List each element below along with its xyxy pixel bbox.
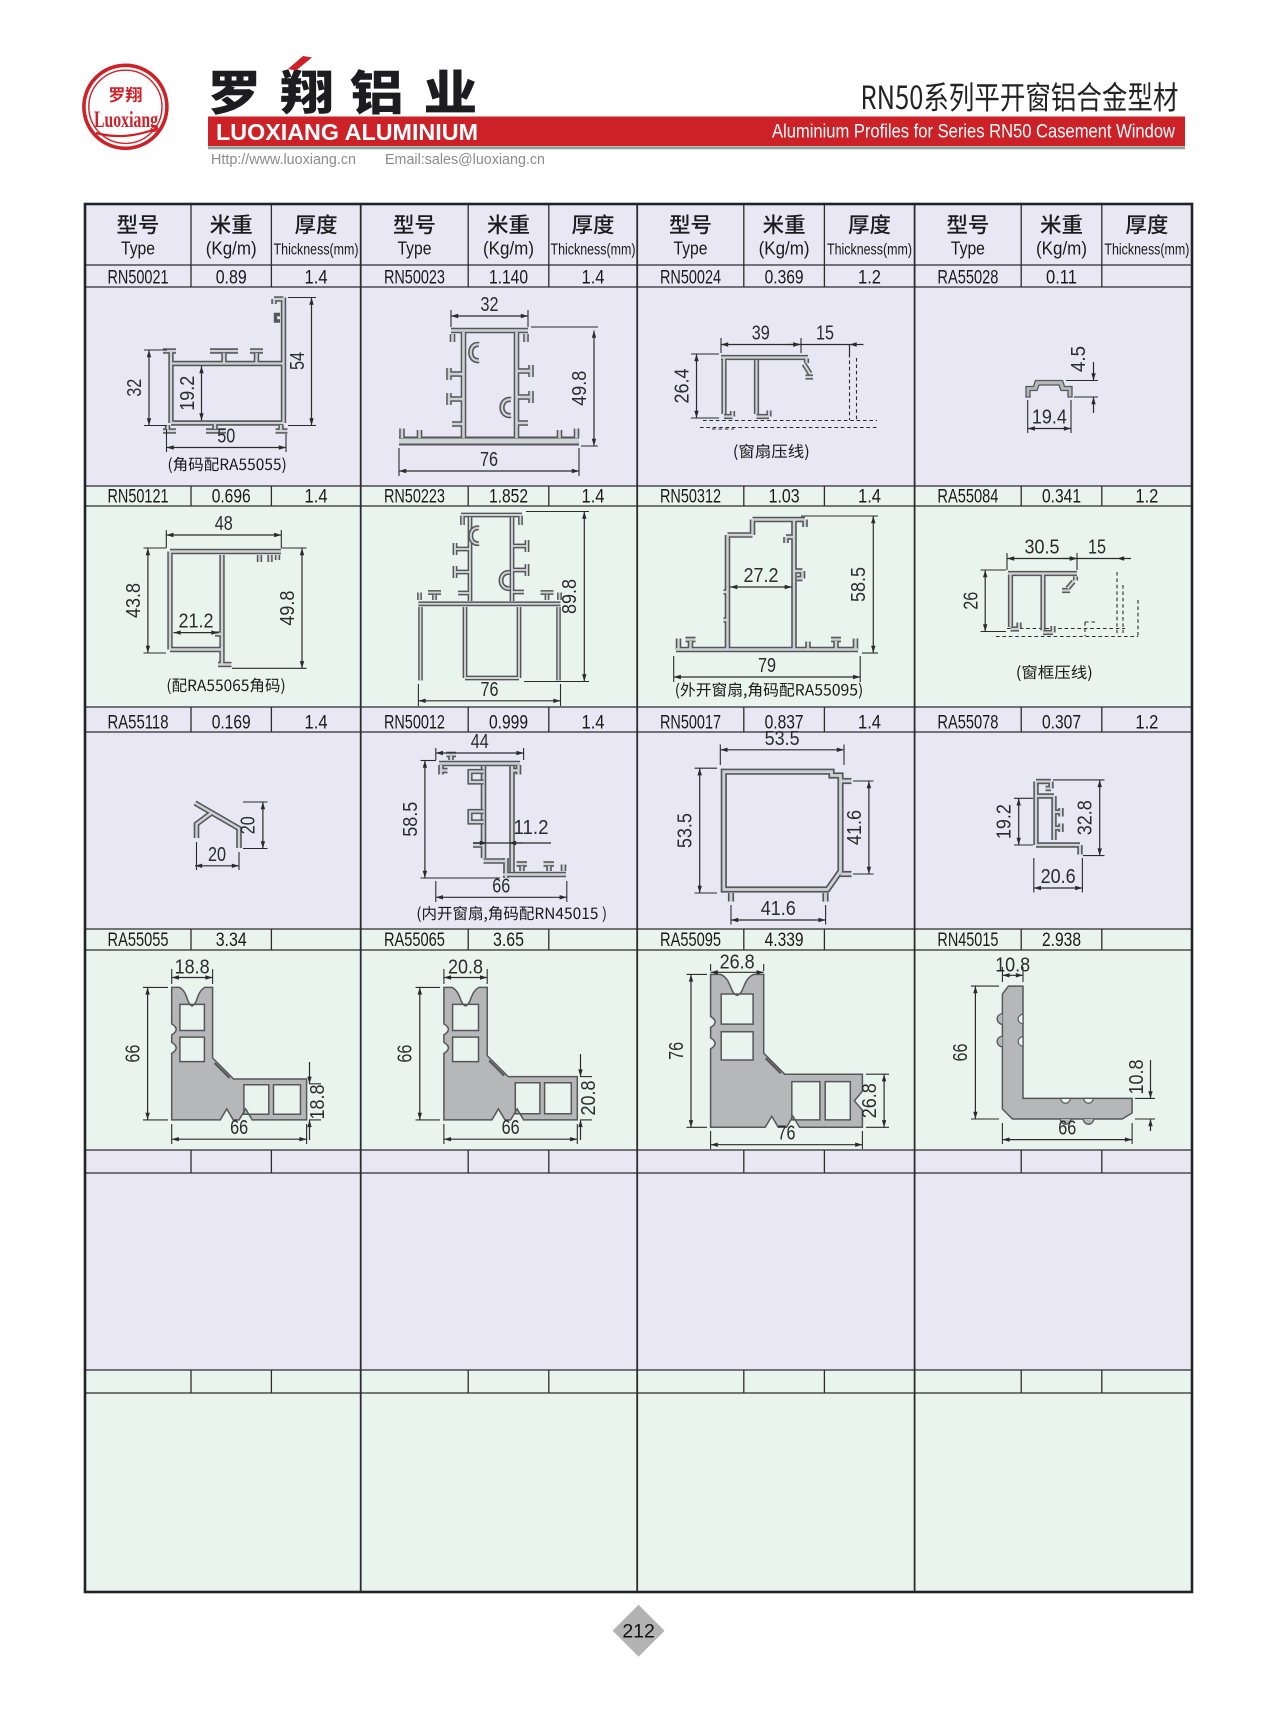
svg-text:66: 66 [395,1045,417,1063]
svg-text:1.4: 1.4 [305,713,328,734]
svg-text:49.8: 49.8 [277,591,299,626]
svg-text:89.8: 89.8 [559,579,581,614]
svg-text:RN50017: RN50017 [660,713,721,734]
svg-text:212: 212 [622,1621,655,1643]
svg-text:58.5: 58.5 [400,802,422,837]
svg-text:30.5: 30.5 [1025,537,1060,559]
svg-text:Luoxiang: Luoxiang [94,107,158,132]
svg-text:1.4: 1.4 [858,487,881,508]
svg-text:1.4: 1.4 [582,268,605,289]
svg-text:RA55118: RA55118 [108,713,169,734]
svg-text:11.2: 11.2 [514,817,549,839]
svg-text:RN50021: RN50021 [108,268,169,289]
svg-text:Type: Type [121,238,155,259]
svg-text:0.89: 0.89 [216,268,247,289]
svg-text:3.65: 3.65 [493,930,524,951]
svg-text:41.6: 41.6 [844,810,866,845]
svg-text:4.339: 4.339 [765,930,804,951]
svg-text:0.696: 0.696 [212,487,251,508]
svg-text:19.4: 19.4 [1032,407,1067,429]
svg-text:76: 76 [666,1042,688,1060]
svg-text:Thickness(mm): Thickness(mm) [274,242,359,259]
svg-text:(Kg/m): (Kg/m) [1036,238,1087,259]
svg-text:1.4: 1.4 [305,487,328,508]
svg-text:RN45015: RN45015 [937,930,998,951]
svg-text:43.8: 43.8 [123,583,145,618]
svg-text:0.999: 0.999 [489,713,528,734]
svg-text:26.8: 26.8 [859,1083,881,1118]
svg-text:Thickness(mm): Thickness(mm) [1104,242,1189,259]
svg-text:10.8: 10.8 [1126,1060,1148,1095]
svg-text:Type: Type [674,238,708,259]
svg-text:(Kg/m): (Kg/m) [759,238,810,259]
svg-text:1.140: 1.140 [489,268,528,289]
svg-text:32.8: 32.8 [1075,800,1097,835]
svg-text:66: 66 [950,1044,972,1062]
svg-text:Email:sales@luoxiang.cn: Email:sales@luoxiang.cn [385,152,545,168]
svg-text:Http://www.luoxiang.cn: Http://www.luoxiang.cn [211,152,356,168]
svg-text:48: 48 [215,513,233,535]
svg-text:58.5: 58.5 [848,567,870,602]
svg-text:1.852: 1.852 [489,487,528,508]
svg-text:10.8: 10.8 [995,954,1030,976]
svg-text:79: 79 [758,655,776,677]
svg-text:18.8: 18.8 [307,1085,329,1120]
svg-text:76: 76 [480,449,498,471]
svg-text:Type: Type [397,238,431,259]
svg-text:66: 66 [1058,1118,1076,1140]
svg-text:15: 15 [816,323,834,345]
svg-text:27.2: 27.2 [744,565,779,587]
svg-text:66: 66 [492,875,510,897]
svg-text:0.341: 0.341 [1042,487,1081,508]
svg-text:21.2: 21.2 [179,611,214,633]
svg-text:RN50223: RN50223 [384,487,445,508]
svg-text:18.8: 18.8 [175,957,210,979]
svg-text:RA55084: RA55084 [937,487,998,508]
svg-text:54: 54 [287,352,309,370]
svg-text:66: 66 [123,1045,145,1063]
svg-text:Aluminium Profiles for Series: Aluminium Profiles for Series RN50 Casem… [772,122,1175,143]
svg-text:26.8: 26.8 [720,952,755,974]
svg-text:RN50312: RN50312 [660,487,721,508]
svg-text:1.2: 1.2 [858,268,881,289]
svg-text:1.4: 1.4 [582,713,605,734]
svg-text:RA55028: RA55028 [937,268,998,289]
svg-text:1.2: 1.2 [1135,487,1158,508]
svg-text:RA55078: RA55078 [937,713,998,734]
svg-text:Thickness(mm): Thickness(mm) [827,242,912,259]
svg-text:RN50024: RN50024 [660,268,721,289]
svg-text:4.5: 4.5 [1068,346,1090,372]
svg-text:26.4: 26.4 [672,369,694,404]
svg-text:26: 26 [961,592,983,610]
svg-text:1.4: 1.4 [582,487,605,508]
svg-text:66: 66 [502,1117,520,1139]
svg-text:20: 20 [238,816,260,834]
svg-text:44: 44 [471,731,489,753]
svg-text:Type: Type [951,238,985,259]
svg-text:32: 32 [124,379,146,397]
svg-text:20.8: 20.8 [448,957,483,979]
svg-text:76: 76 [778,1123,796,1145]
svg-text:0.11: 0.11 [1046,268,1077,289]
svg-text:53.5: 53.5 [765,728,800,750]
svg-text:66: 66 [230,1117,248,1139]
svg-text:39: 39 [752,323,770,345]
svg-text:3.34: 3.34 [216,930,247,951]
svg-text:1.4: 1.4 [858,713,881,734]
svg-text:1.03: 1.03 [769,487,800,508]
svg-text:0.169: 0.169 [212,713,251,734]
svg-text:20: 20 [208,844,226,866]
svg-text:RN50012: RN50012 [384,713,445,734]
svg-text:53.5: 53.5 [675,813,697,848]
svg-text:0.369: 0.369 [765,268,804,289]
svg-text:RA55055: RA55055 [108,930,169,951]
svg-text:0.307: 0.307 [1042,713,1081,734]
svg-text:49.8: 49.8 [569,371,591,406]
svg-text:1.4: 1.4 [305,268,328,289]
svg-text:19.2: 19.2 [994,804,1016,839]
svg-text:19.2: 19.2 [177,376,199,411]
svg-text:50: 50 [217,426,235,448]
svg-text:RA55095: RA55095 [660,930,721,951]
svg-text:15: 15 [1088,537,1106,559]
svg-text:(Kg/m): (Kg/m) [483,238,534,259]
svg-text:RN50023: RN50023 [384,268,445,289]
svg-text:20.6: 20.6 [1041,866,1076,888]
svg-text:32: 32 [481,294,499,316]
svg-text:2.938: 2.938 [1042,930,1081,951]
svg-text:(Kg/m): (Kg/m) [206,238,257,259]
svg-text:RN50121: RN50121 [108,487,169,508]
svg-text:76: 76 [480,679,498,701]
svg-text:LUOXIANG ALUMINIUM: LUOXIANG ALUMINIUM [216,119,478,145]
svg-text:41.6: 41.6 [761,898,796,920]
svg-text:RA55065: RA55065 [384,930,445,951]
svg-text:1.2: 1.2 [1135,713,1158,734]
svg-text:Thickness(mm): Thickness(mm) [551,242,636,259]
svg-text:20.8: 20.8 [578,1081,600,1116]
